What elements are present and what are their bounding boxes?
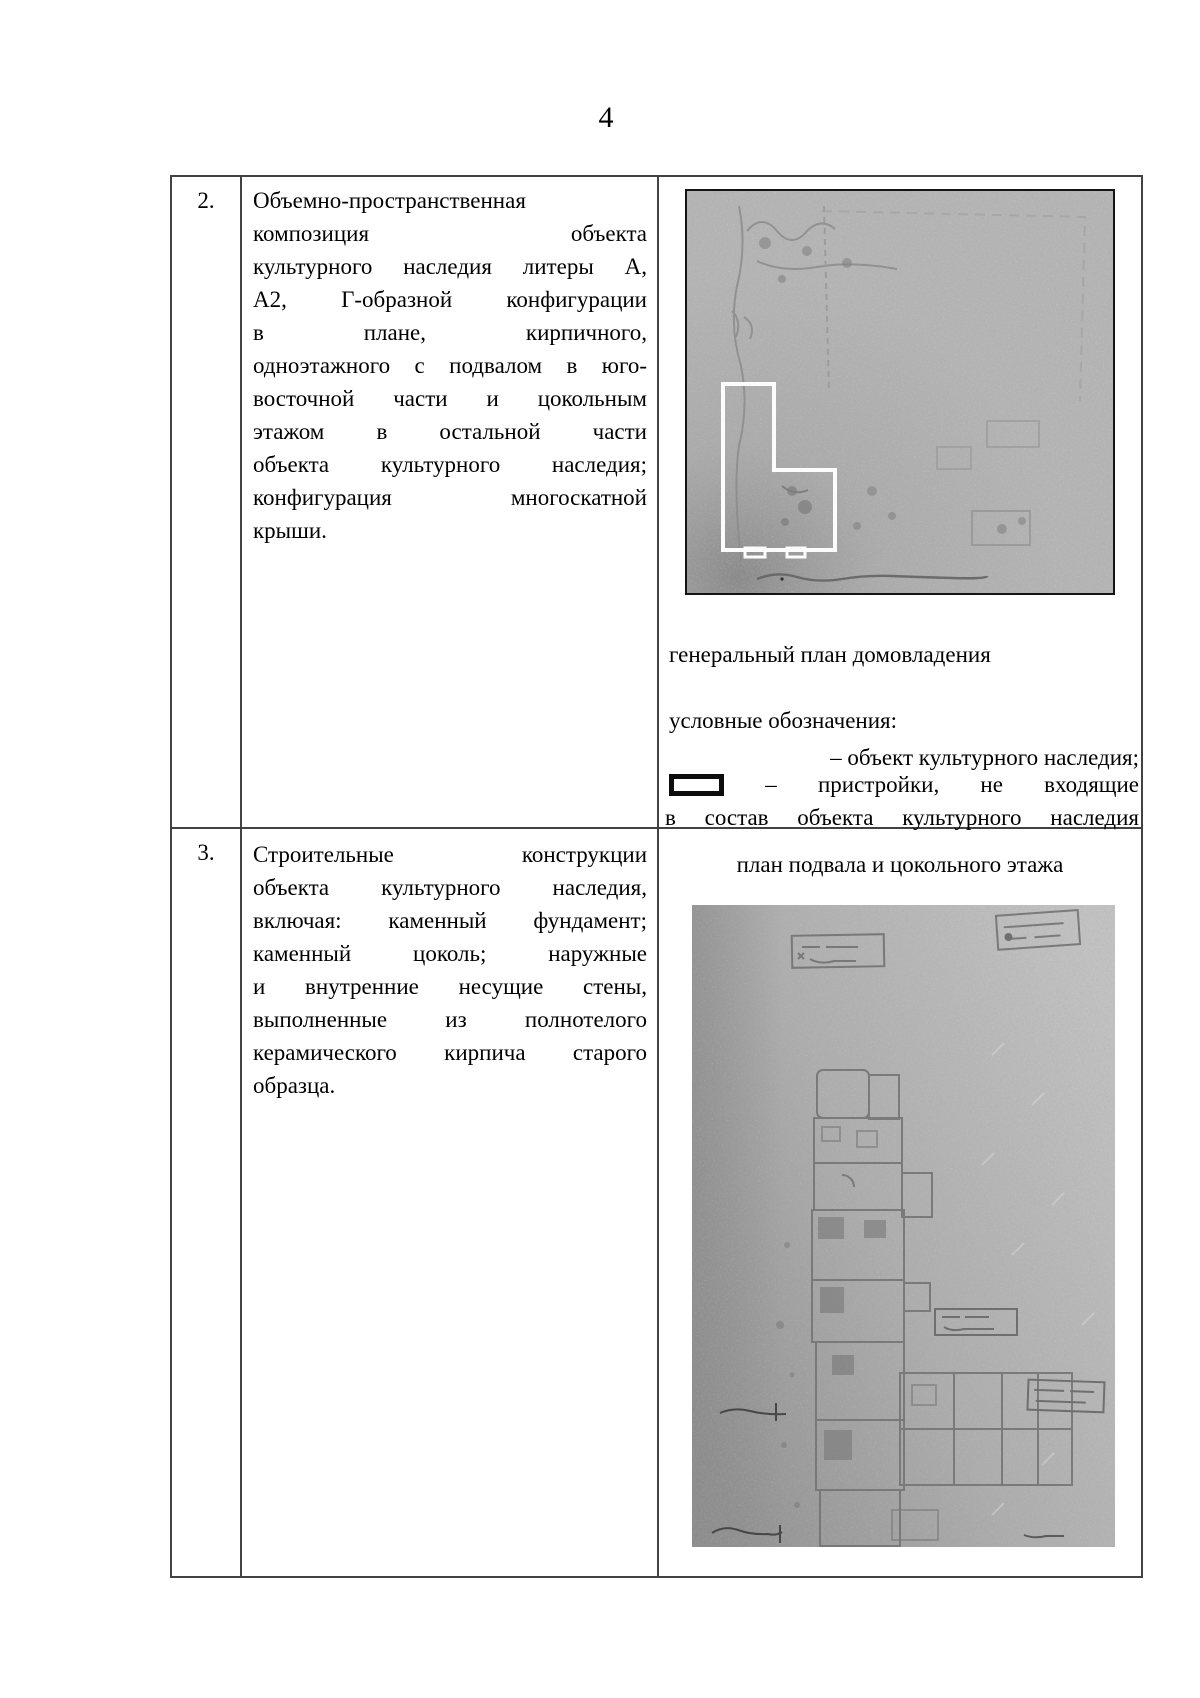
text-line: и внутренние несущие стены, <box>253 970 647 1003</box>
basement-plan-drawing <box>692 905 1115 1547</box>
row2-number: 2. <box>197 188 214 213</box>
text-line: образца. <box>253 1069 647 1102</box>
text-line: Объемно-пространственная <box>253 184 647 217</box>
text-line: А2, Г-образной конфигурации <box>253 283 647 316</box>
legend-title: условные обозначения: <box>669 704 897 737</box>
text-line: выполненные из полнотелого <box>253 1003 647 1036</box>
text-line: конфигурация многоскатной <box>253 481 647 514</box>
text-line: крыши. <box>253 514 647 547</box>
row3-image-cell: план подвала и цокольного этажа <box>659 829 1141 1576</box>
annex-symbol-rect <box>669 774 724 796</box>
general-plan-drawing <box>687 191 1113 593</box>
row3-text-cell: Строительные конструкцииобъекта культурн… <box>242 829 659 1576</box>
document-page: 4 2. Объемно-пространственнаякомпозиция … <box>0 0 1200 1698</box>
text-line: этажом в остальной части <box>253 415 647 448</box>
row2-text-cell: Объемно-пространственнаякомпозиция объек… <box>242 177 659 829</box>
characteristics-table: 2. Объемно-пространственнаякомпозиция об… <box>170 175 1143 1578</box>
basement-plan-scan-image <box>692 905 1115 1547</box>
general-plan-caption: генеральный план домовладения <box>669 638 991 671</box>
text-line: включая: каменный фундамент; <box>253 904 647 937</box>
text-line: керамического кирпича старого <box>253 1036 647 1069</box>
row3-paragraph: Строительные конструкцииобъекта культурн… <box>242 829 657 1102</box>
row2-paragraph: Объемно-пространственнаякомпозиция объек… <box>242 177 657 547</box>
row3-number: 3. <box>197 840 214 865</box>
text-line: восточной части и цокольным <box>253 382 647 415</box>
text-line: в плане, кирпичного, <box>253 316 647 349</box>
text-line: объекта культурного наследия, <box>253 871 647 904</box>
row2-image-cell: генеральный план домовладения условные о… <box>659 177 1141 829</box>
general-plan-scan-image <box>685 189 1115 595</box>
text-line: Строительные конструкции <box>253 838 647 871</box>
basement-plan-caption: план подвала и цокольного этажа <box>659 848 1141 881</box>
text-line: каменный цоколь; наружные <box>253 937 647 970</box>
legend-item-annex: – пристройки, не входящие <box>669 768 1139 801</box>
legend-item-annex-text: – пристройки, не входящие <box>765 772 1139 797</box>
page-number: 4 <box>0 101 1200 135</box>
text-line: композиция объекта <box>253 217 647 250</box>
text-line: объекта культурного наследия; <box>253 448 647 481</box>
row2-number-cell: 2. <box>172 177 242 829</box>
text-line: культурного наследия литеры А, <box>253 250 647 283</box>
text-line: одноэтажного с подвалом в юго- <box>253 349 647 382</box>
row3-number-cell: 3. <box>172 829 242 1576</box>
